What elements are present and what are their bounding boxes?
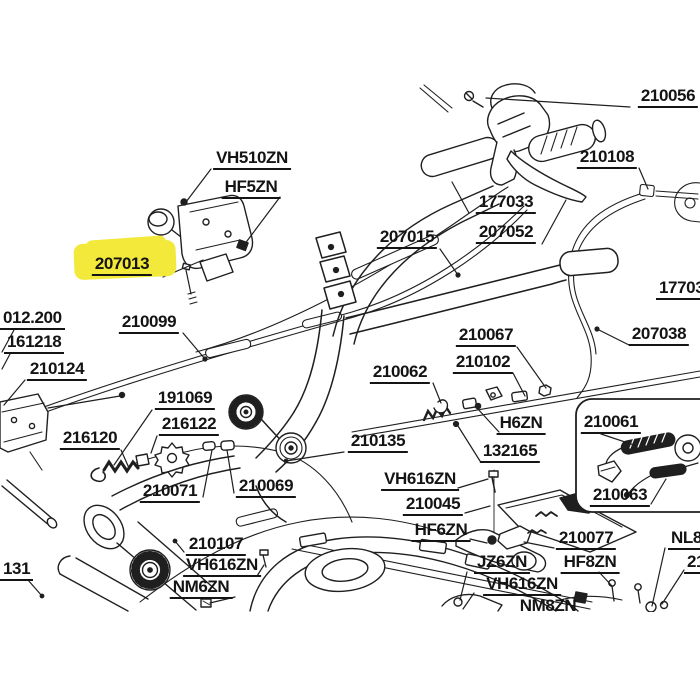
part-label-nm6zn: NM6ZN	[170, 578, 233, 599]
part-label-210067: 210067	[456, 326, 516, 347]
part-label-hf8zn: HF8ZN	[561, 553, 620, 574]
part-label-131-clipped: 131	[0, 560, 33, 581]
part-label-210108: 210108	[577, 148, 637, 169]
part-label-216122: 216122	[159, 415, 219, 436]
part-label-210135: 210135	[348, 432, 408, 453]
part-label-161218: 161218	[4, 333, 64, 354]
part-label-hf5zn: HF5ZN	[222, 178, 281, 199]
diagram-stage: 210056 VH510ZN HF5ZN 207013 177033 20705…	[0, 0, 700, 612]
part-label-210061: 210061	[581, 413, 641, 434]
part-label-210124: 210124	[27, 360, 87, 381]
part-label-210069: 210069	[236, 477, 296, 498]
part-label-207013-highlighted: 207013	[92, 255, 152, 276]
part-label-21-clipped: 21	[684, 553, 700, 574]
part-label-210063: 210063	[590, 486, 650, 507]
part-label-132165: 132165	[480, 442, 540, 463]
part-label-210107: 210107	[186, 535, 246, 556]
part-label-012-200-clipped: 012.200	[0, 309, 65, 330]
throttle-lever-drawing	[419, 84, 608, 202]
part-label-210056: 210056	[638, 87, 698, 108]
part-label-207038: 207038	[629, 325, 689, 346]
part-label-nm8zn-clipped: NM8ZN	[517, 597, 580, 612]
part-label-17703-clipped: 17703	[656, 279, 700, 300]
part-label-177033: 177033	[476, 193, 536, 214]
part-label-210062: 210062	[370, 363, 430, 384]
cable-roller-drawing	[229, 395, 306, 463]
part-label-jz6zn: JZ6ZN	[474, 553, 530, 574]
part-label-nl8-clipped: NL8	[668, 529, 700, 550]
part-label-vh510zn: VH510ZN	[213, 149, 291, 170]
part-label-210102: 210102	[453, 353, 513, 374]
part-label-207015: 207015	[377, 228, 437, 249]
part-label-210045: 210045	[403, 495, 463, 516]
part-label-h6zn: H6ZN	[497, 414, 546, 435]
part-label-191069: 191069	[155, 389, 215, 410]
part-label-210099: 210099	[119, 313, 179, 334]
parts-diagram-page: { "diagram": { "kind": "exploded-parts-d…	[0, 0, 700, 700]
part-label-vh616zn-3: VH616ZN	[483, 575, 561, 596]
part-label-207052: 207052	[476, 223, 536, 244]
part-label-hf6zn: HF6ZN	[412, 521, 471, 542]
part-label-216120: 216120	[60, 429, 120, 450]
part-label-210077: 210077	[556, 529, 616, 550]
part-label-vh616zn-2: VH616ZN	[183, 556, 261, 577]
part-label-210071: 210071	[140, 482, 200, 503]
diagram-line-art	[0, 0, 700, 612]
part-label-vh616zn-1: VH616ZN	[381, 470, 459, 491]
